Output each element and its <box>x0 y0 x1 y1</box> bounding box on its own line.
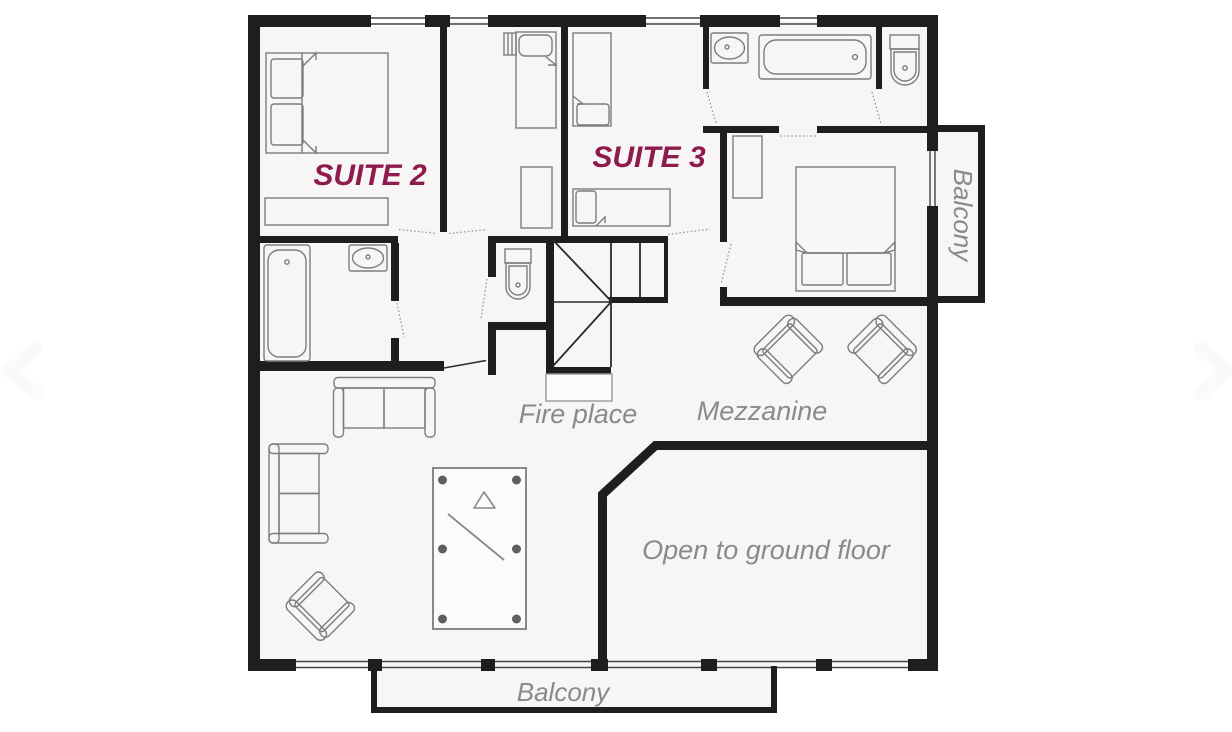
svg-text:SUITE 2: SUITE 2 <box>313 159 427 192</box>
svg-text:SUITE 3: SUITE 3 <box>592 141 706 174</box>
svg-text:Mezzanine: Mezzanine <box>697 396 828 426</box>
svg-text:Balcony: Balcony <box>948 169 978 263</box>
svg-text:Balcony: Balcony <box>517 677 611 707</box>
svg-text:Fire place: Fire place <box>519 399 638 429</box>
svg-text:Open to ground floor: Open to ground floor <box>642 535 891 565</box>
